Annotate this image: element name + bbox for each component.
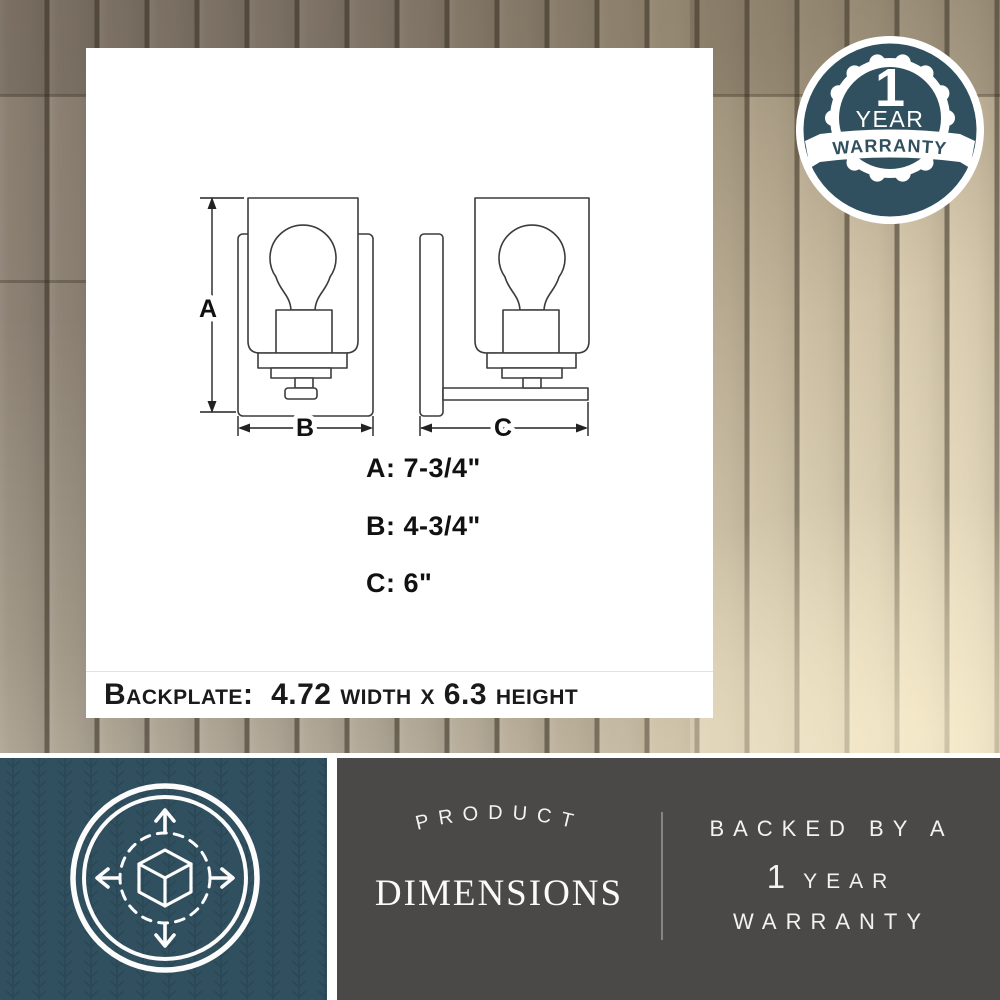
warranty-line-2: 1YEAR — [663, 858, 1000, 896]
footer-band: PRODUCT DIMENSIONS BACKED BY A 1YEAR WAR… — [0, 753, 1000, 1000]
sconce-line-drawing: A B C — [86, 48, 713, 478]
arch-label: PRODUCT — [413, 802, 584, 835]
warranty-line-3: WARRANTY — [663, 909, 1000, 935]
sconce-front-view — [238, 198, 373, 416]
footer-text-panel: PRODUCT DIMENSIONS BACKED BY A 1YEAR WAR… — [337, 758, 1000, 1000]
dimensions-icon-tile — [0, 758, 327, 1000]
backplate-note: Backplate: 4.72 width x 6.3 height — [86, 671, 713, 718]
arched-product-text: PRODUCT — [337, 758, 661, 858]
warranty-year-number: 1 — [767, 858, 785, 895]
warranty-year-word: YEAR — [803, 870, 896, 893]
dimension-value-c: C: 6" — [366, 568, 432, 599]
wall-seam — [0, 280, 88, 283]
warranty-line-1: BACKED BY A — [663, 816, 1000, 842]
warranty-text-block: BACKED BY A 1YEAR WARRANTY — [663, 758, 1000, 1000]
3d-dimensions-cube-icon — [0, 758, 327, 1000]
dimension-value-a: A: 7-3/4" — [366, 453, 481, 484]
sconce-side-view — [420, 198, 589, 416]
dimension-value-b: B: 4-3/4" — [366, 511, 481, 542]
badge-year-label: YEAR — [856, 106, 925, 132]
svg-text:PRODUCT: PRODUCT — [413, 802, 584, 835]
diagram-panel: A B C A: 7-3/4" B: 4-3/4" C: 6" Backplat… — [86, 48, 713, 718]
section-title: DIMENSIONS — [337, 872, 661, 915]
product-dimensions-block: PRODUCT DIMENSIONS — [337, 758, 661, 1000]
product-dimensions-graphic: A B C A: 7-3/4" B: 4-3/4" C: 6" Backplat… — [0, 0, 1000, 1000]
warranty-badge: 1 YEAR WARRANTY — [795, 35, 985, 225]
dim-marker-c: C — [494, 414, 512, 442]
dim-marker-b: B — [296, 414, 314, 442]
dim-marker-a: A — [199, 295, 217, 323]
